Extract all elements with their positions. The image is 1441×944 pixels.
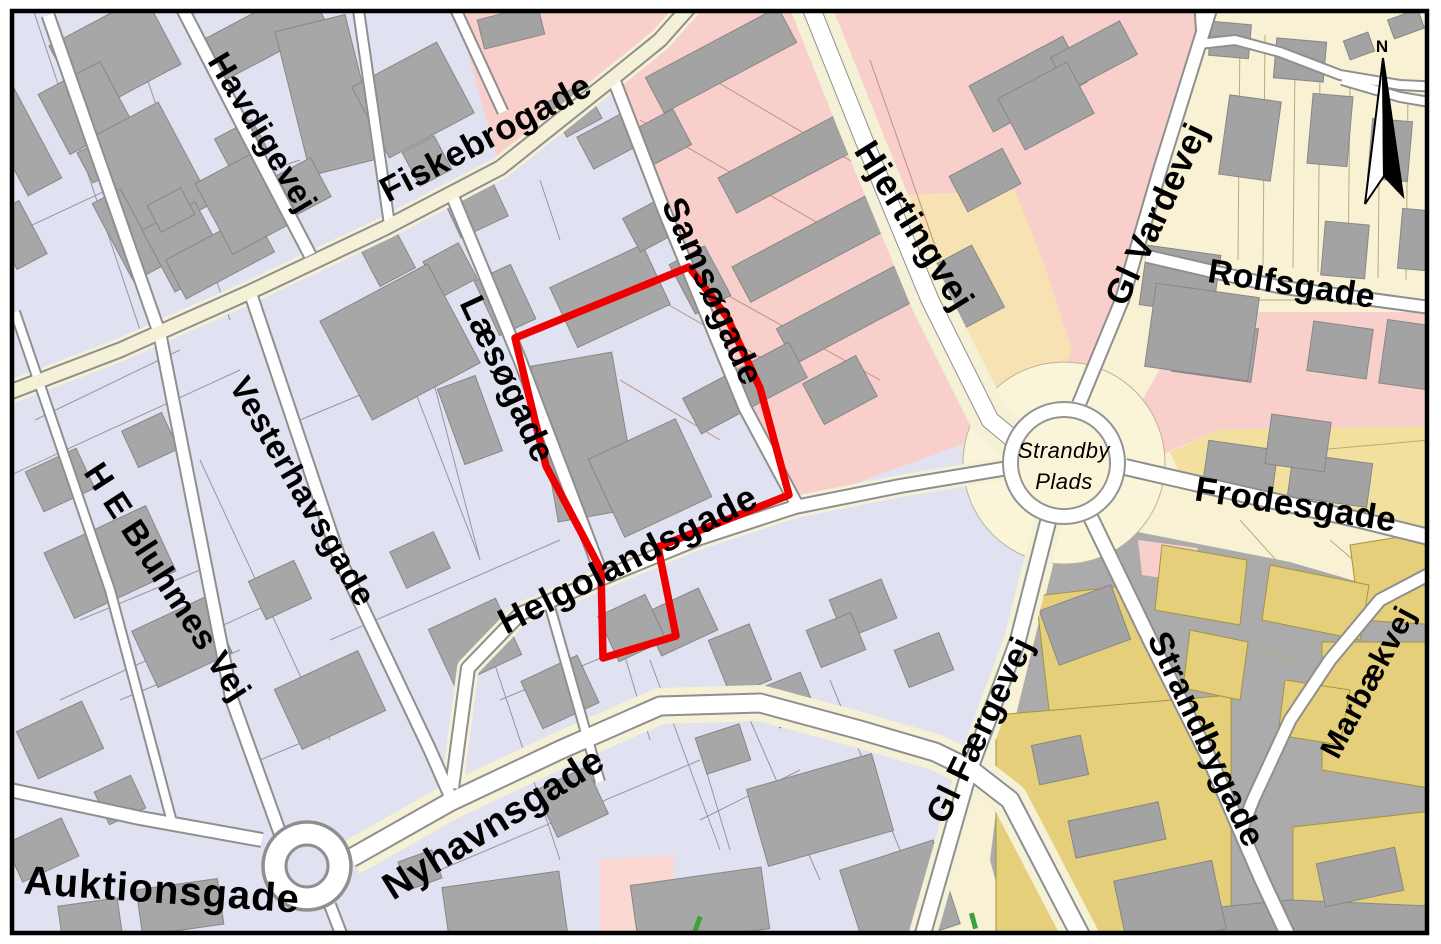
svg-text:Strandby: Strandby [1018, 438, 1112, 463]
svg-text:N: N [1376, 37, 1388, 56]
svg-text:Plads: Plads [1035, 469, 1093, 494]
